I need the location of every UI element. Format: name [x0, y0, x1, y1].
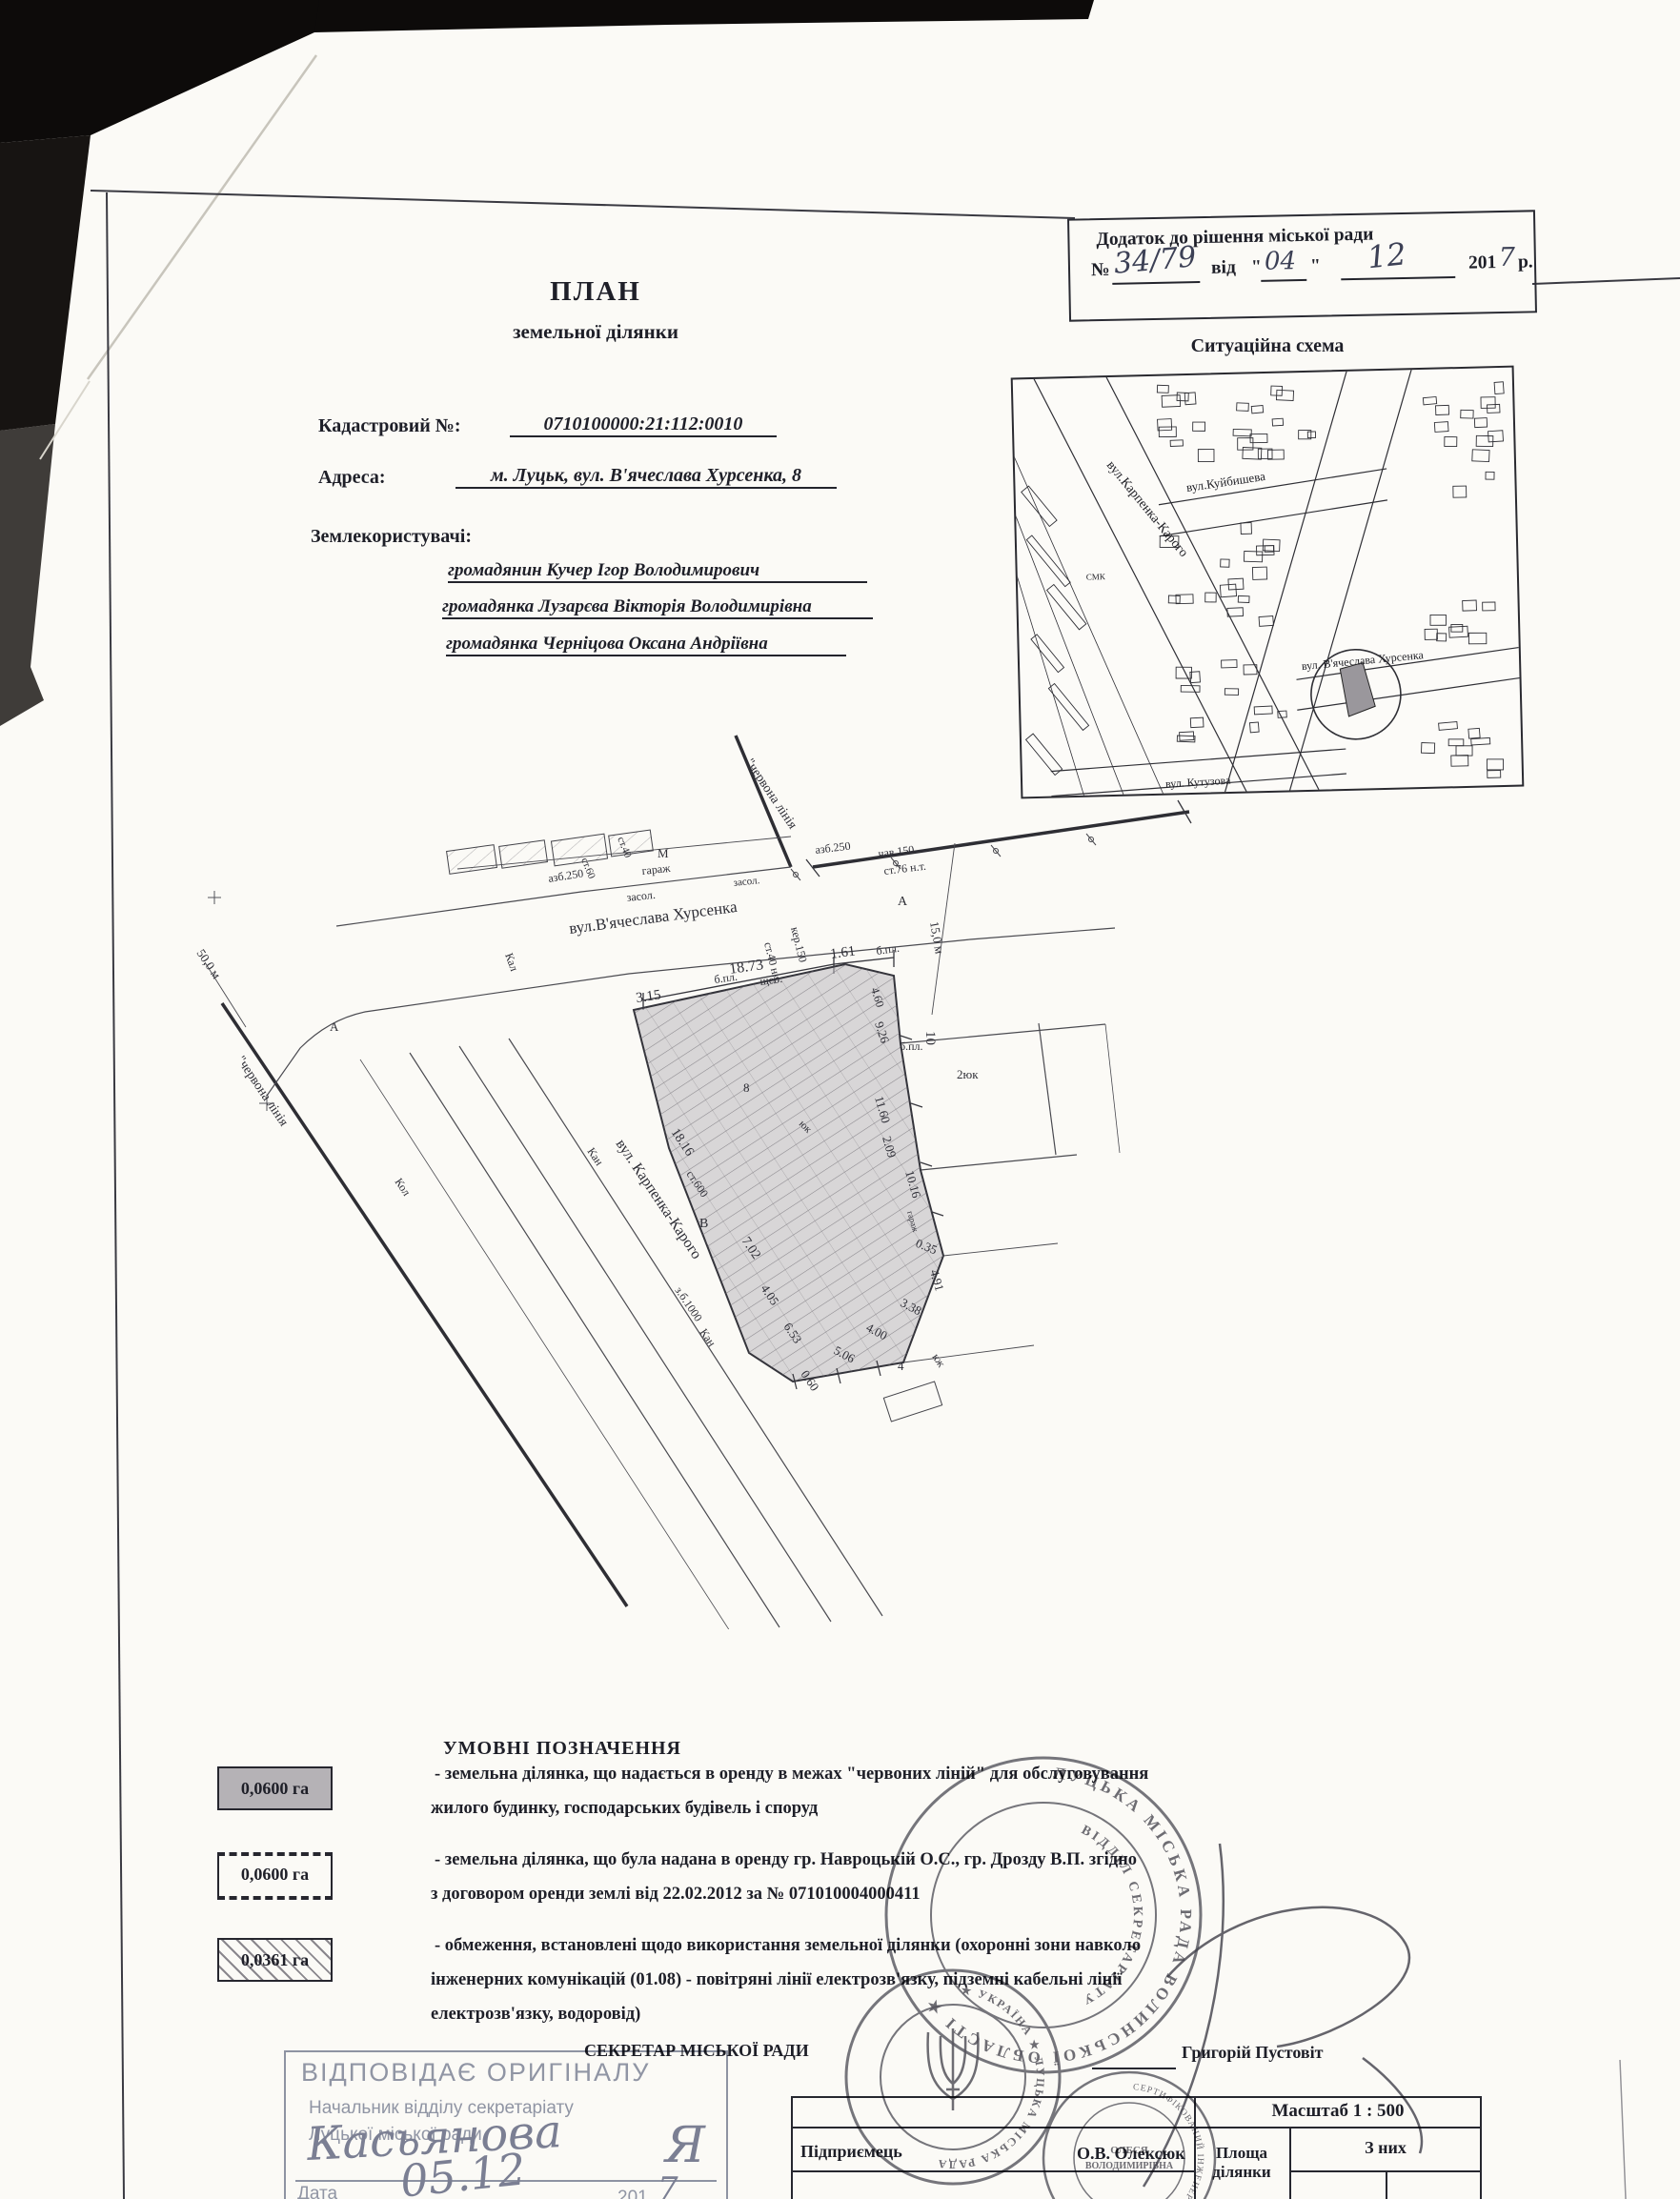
map-building	[1434, 422, 1448, 433]
legend-swatch-hatched: 0,0361 га	[217, 1938, 333, 1982]
map-building	[1184, 393, 1196, 405]
drawing-label: 1.61	[829, 943, 856, 961]
annex-no-value-handwritten: 34/79	[1112, 240, 1197, 281]
map-building	[1488, 771, 1501, 778]
drawing-label: 50,0 м	[194, 946, 225, 981]
address-value: м. Луцьк, вул. В'ячеслава Хурсенка, 8	[455, 465, 837, 489]
map-building	[1205, 593, 1217, 602]
scanner-left-sliver	[0, 135, 91, 431]
drawing-label: вул.Карпенка-Карого	[1103, 458, 1190, 560]
map-building	[1238, 595, 1249, 602]
map-building	[1022, 486, 1057, 526]
map-building	[1468, 633, 1486, 644]
map-building	[1170, 440, 1183, 447]
annex-vid: від	[1211, 257, 1236, 278]
legend-swatch-filled: 0,0600 га	[217, 1766, 333, 1810]
annex-no-underline	[1112, 281, 1200, 285]
frame-left-line	[107, 192, 124, 2199]
map-building	[1421, 742, 1434, 753]
drawing-label: 2юк	[957, 1067, 979, 1081]
annex-year-handwritten: 7	[1499, 243, 1516, 272]
map-building	[1249, 722, 1259, 733]
page-title: ПЛАН	[410, 276, 781, 308]
page-subtitle: земельної ділянки	[410, 320, 781, 344]
map-building	[1474, 418, 1487, 428]
annex-month-underline	[1341, 276, 1455, 280]
plot-highlight	[1340, 662, 1375, 716]
drawing-label: вул.Куйбишева	[1185, 469, 1266, 494]
map-building	[1159, 427, 1176, 437]
drawing-label: чав.150	[878, 842, 915, 860]
drawing-label: засол.	[733, 875, 760, 889]
map-building	[1244, 551, 1262, 561]
drawing-label: гараж	[641, 861, 672, 878]
situation-title: Ситуаційна схема	[1105, 335, 1429, 357]
map-building	[1486, 472, 1494, 479]
map-building	[1251, 406, 1263, 414]
map-building	[1487, 404, 1500, 413]
annex-quote1: "	[1251, 257, 1262, 278]
drawing-label: В	[699, 1217, 708, 1231]
neighbor-building	[883, 1382, 941, 1422]
drawing-label: СМК	[1086, 572, 1106, 582]
annex-no-sign: №	[1091, 260, 1110, 281]
drawing-label: 3.15	[635, 987, 661, 1005]
council-stamp-ring-text: ЛУЦЬКА МІСЬКА РАДА ВОЛИНСЬКОЇ ОБЛАСТІ ★	[921, 1764, 1195, 2067]
users-label: Землекористувачі:	[311, 526, 472, 548]
map-building	[1425, 629, 1437, 639]
annex-year-r: р.	[1518, 252, 1533, 272]
cadastral-label: Кадастровий №:	[318, 415, 461, 437]
map-building	[1476, 435, 1493, 446]
drawing-label: А	[330, 1019, 339, 1034]
map-building	[1221, 559, 1229, 567]
cadastral-value: 0710100000:21:112:0010	[510, 414, 777, 437]
scanner-left-sliver-2	[0, 424, 55, 726]
frame-top-line-right	[1532, 278, 1680, 284]
map-building	[1481, 397, 1495, 409]
map-building	[1468, 728, 1480, 738]
map-building	[1471, 737, 1490, 745]
map-building	[1237, 403, 1249, 412]
map-building	[1461, 410, 1473, 418]
drawing-label: М	[658, 846, 669, 860]
map-building	[1445, 436, 1457, 446]
drawing-label: азб.250	[815, 839, 852, 857]
drawing-label: 10	[922, 1031, 938, 1045]
annex-quote2: "	[1310, 256, 1321, 277]
drawing-label: б.пл.	[875, 941, 900, 958]
map-building	[1259, 615, 1273, 626]
map-building	[1031, 635, 1064, 673]
map-building	[1451, 756, 1468, 767]
map-building	[1158, 419, 1172, 431]
drawing-label: вул.В'ячеслава Хурсенка	[568, 898, 739, 938]
map-building	[1456, 746, 1472, 756]
drawing-label: б.пл.	[900, 1039, 923, 1053]
street-boundary-right	[813, 812, 1189, 867]
drawing-label: 8	[743, 1080, 750, 1095]
map-building	[1439, 722, 1458, 731]
map-building	[1472, 450, 1489, 462]
drawing-label: Кол	[393, 1176, 414, 1199]
user-3: громадянка Черніцова Оксана Андріївна	[446, 634, 846, 656]
drawing-label: Кал	[502, 951, 521, 973]
surveyor-name-line1: ОЛЕСЯ	[1110, 2145, 1147, 2156]
map-building	[1463, 600, 1477, 611]
date-label: Дата	[297, 2184, 337, 2199]
drawing-label: ст.76 н.т.	[883, 859, 927, 878]
leased-plot-polygon	[634, 964, 943, 1382]
drawing-label: з.б.1000	[673, 1284, 705, 1324]
map-building	[1451, 624, 1463, 632]
user-1: громадянин Кучер Ігор Володимирович	[448, 560, 867, 583]
map-building	[1193, 422, 1205, 431]
map-building	[1448, 739, 1464, 746]
map-building	[1233, 429, 1251, 435]
annex-day-underline	[1261, 279, 1306, 282]
legend-swatch-dashed: 0,0600 га	[217, 1852, 333, 1900]
drawing-label: 4	[898, 1359, 904, 1373]
annex-box: Додаток до рішення міської ради № 34/79 …	[1067, 210, 1537, 321]
map-building	[1227, 608, 1244, 616]
council-stamp-outer-circle	[886, 1758, 1201, 2072]
map-building	[1436, 405, 1449, 414]
scanned-land-plan-document: Додаток до рішення міської ради № 34/79 …	[0, 0, 1680, 2199]
annex-year-printed: 201	[1468, 252, 1497, 274]
map-building	[1157, 385, 1168, 393]
map-building	[1168, 595, 1180, 603]
map-building	[1222, 660, 1237, 668]
drawing-label: азб.250	[547, 866, 584, 885]
map-building	[1430, 615, 1446, 625]
drawing-label: Кан	[585, 1145, 607, 1169]
map-building	[1252, 567, 1266, 579]
drawing-label: кж	[930, 1351, 949, 1370]
map-building	[1453, 486, 1467, 497]
map-building	[1198, 450, 1214, 462]
map-building	[1487, 759, 1503, 770]
surveyor-name-line2: ВОЛОДИМИРІВНА	[1085, 2161, 1174, 2171]
round-stamps-overlay: ЛУЦЬКА МІСЬКА РАДА ВОЛИНСЬКОЇ ОБЛАСТІ ★ …	[610, 1753, 1429, 2199]
map-building	[1181, 685, 1200, 692]
map-building	[1272, 418, 1284, 426]
land-plot-survey-drawing: "червона лінія"червона лінія50,0 мвул.В'…	[124, 724, 1229, 1629]
frame-top-line	[91, 191, 1075, 218]
map-building	[1267, 450, 1284, 459]
red-line-left	[222, 1003, 627, 1606]
annex-month-handwritten: 12	[1366, 235, 1408, 275]
map-building	[1225, 689, 1238, 696]
map-building	[1437, 634, 1447, 641]
drawing-label: А	[898, 895, 908, 909]
annex-day-handwritten: 04	[1265, 247, 1297, 276]
map-building	[1307, 432, 1315, 438]
address-label: Адреса:	[318, 467, 386, 489]
scanner-corner-wedge	[0, 0, 319, 143]
drawing-label: Кан	[698, 1326, 719, 1350]
drawing-label: засол.	[626, 888, 657, 904]
map-building	[1423, 396, 1436, 404]
map-building	[1494, 382, 1504, 394]
frame-right-line	[1620, 2060, 1626, 2199]
map-building	[1177, 393, 1188, 401]
user-2: громадянка Лузарєва Вікторія Володимирів…	[442, 596, 873, 619]
map-building	[1254, 706, 1272, 715]
stamp-box-title: ВІДПОВІДАЄ ОРИГІНАЛУ	[301, 2058, 650, 2088]
svg-text:ЛУЦЬКА МІСЬКА РАДА ВОЛИНСЬКОЇ: ЛУЦЬКА МІСЬКА РАДА ВОЛИНСЬКОЇ ОБЛАСТІ ★	[921, 1764, 1195, 2067]
map-building	[1483, 602, 1495, 611]
map-building	[1241, 523, 1252, 535]
